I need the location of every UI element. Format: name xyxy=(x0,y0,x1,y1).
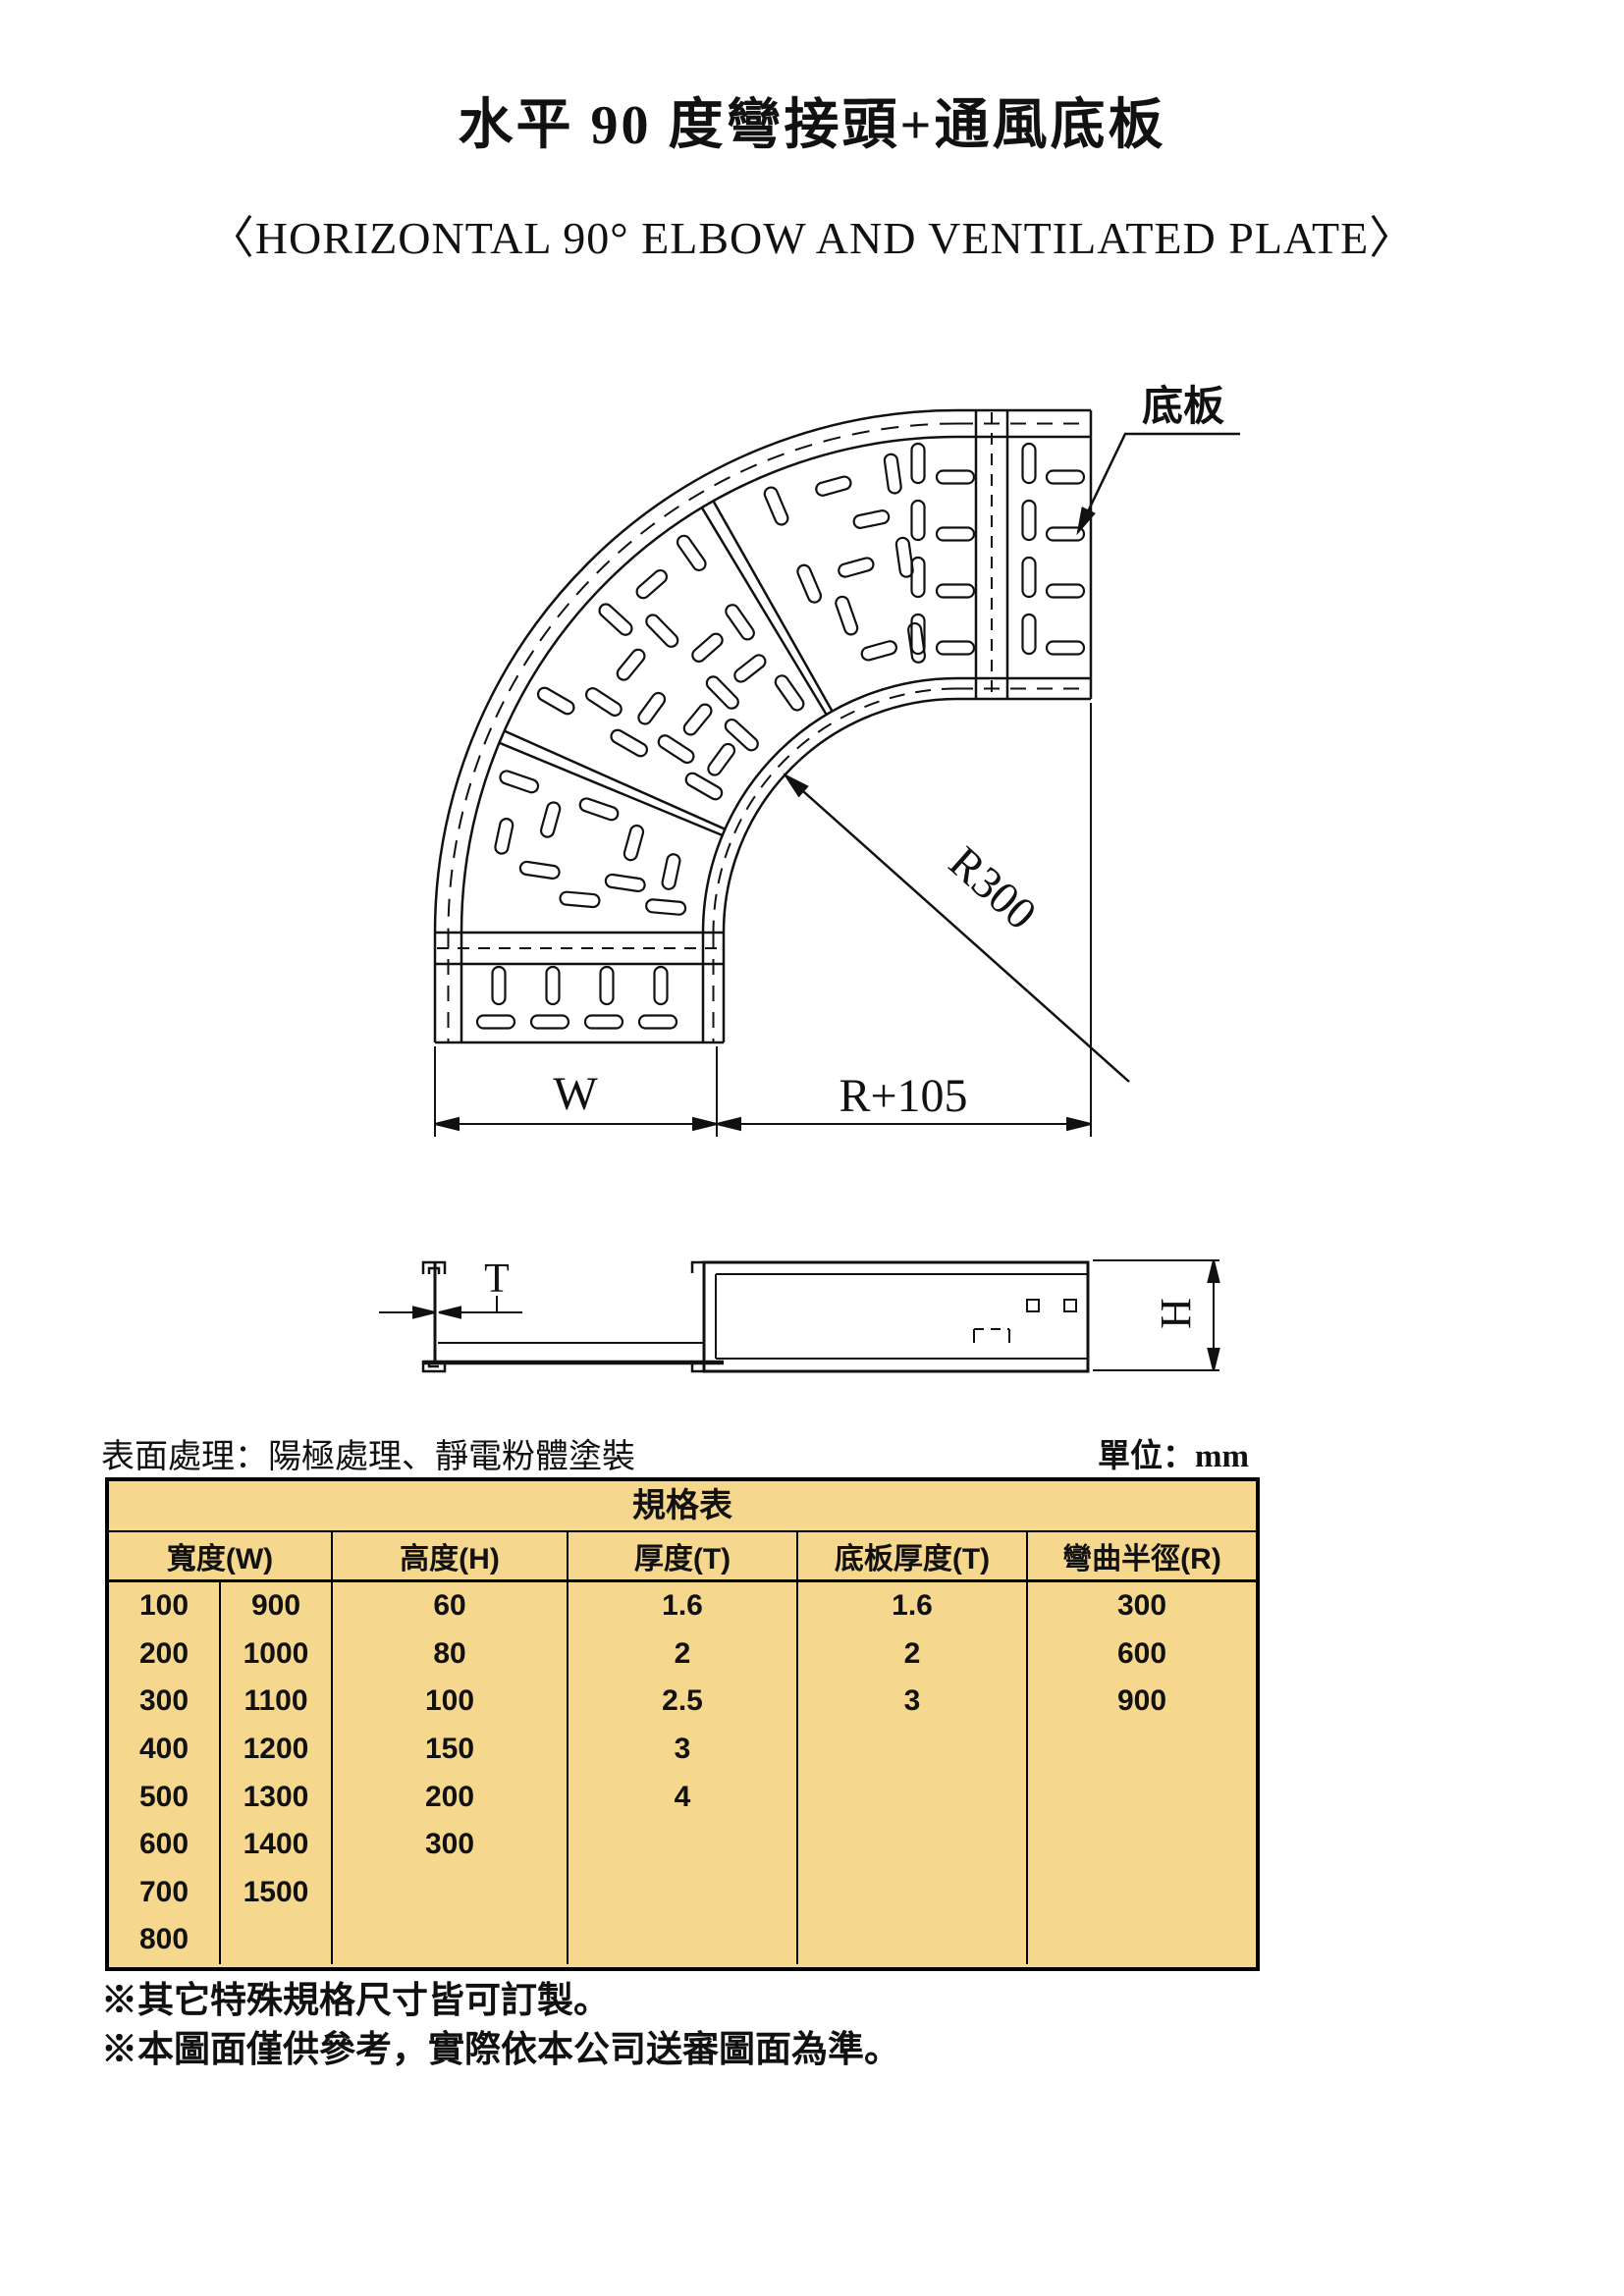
table-cell: 2 xyxy=(568,1630,796,1679)
footnote: ※其它特殊規格尺寸皆可訂製。 xyxy=(101,1977,900,2026)
table-cell: 1400 xyxy=(221,1821,331,1869)
table-cell: 200 xyxy=(333,1773,567,1821)
spec-table-caption: 規格表 xyxy=(109,1481,1256,1532)
table-cell xyxy=(221,1916,331,1964)
r-plus-dim-label: R+105 xyxy=(839,1070,967,1122)
table-cell: 400 xyxy=(109,1726,219,1774)
t-dim-label: T xyxy=(484,1256,510,1302)
table-cell: 1300 xyxy=(221,1773,331,1821)
footnote: ※本圖面僅供參考，實際依本公司送審圖面為準。 xyxy=(101,2026,900,2075)
col-header-height: 高度(H) xyxy=(331,1532,567,1579)
surface-treatment-note: 表面處理：陽極處理、靜電粉體塗裝 xyxy=(101,1429,635,1477)
footnotes: ※其它特殊規格尺寸皆可訂製。 ※本圖面僅供參考，實際依本公司送審圖面為準。 xyxy=(101,1977,900,2075)
elbow-plan-view xyxy=(435,410,1091,1042)
dimensions-plan xyxy=(435,434,1240,1137)
table-cell: 100 xyxy=(333,1678,567,1726)
table-cell: 60 xyxy=(333,1582,567,1630)
plate-label: 底板 xyxy=(1142,384,1224,430)
table-cell xyxy=(798,1773,1026,1821)
table-cell: 1.6 xyxy=(798,1582,1026,1630)
table-cell: 800 xyxy=(109,1916,219,1964)
table-cell: 200 xyxy=(109,1630,219,1679)
table-cell: 100 xyxy=(109,1582,219,1630)
table-column-r: 300600900 xyxy=(1026,1582,1256,1964)
table-cell xyxy=(798,1869,1026,1917)
table-cell xyxy=(798,1726,1026,1774)
col-header-plate-thickness: 底板厚度(T) xyxy=(796,1532,1026,1579)
table-column-w1: 100200300400500600700800 xyxy=(109,1582,219,1964)
table-cell xyxy=(1028,1869,1256,1917)
datasheet-page: { "title": "水平 90 度彎接頭+通風底板", "subtitle"… xyxy=(0,0,1624,2296)
col-header-width: 寬度(W) xyxy=(109,1532,331,1579)
table-cell xyxy=(1028,1821,1256,1869)
width-dim-label: W xyxy=(553,1068,598,1120)
table-cell: 300 xyxy=(333,1821,567,1869)
spec-table-header: 寬度(W) 高度(H) 厚度(T) 底板厚度(T) 彎曲半徑(R) xyxy=(109,1532,1256,1582)
table-cell: 300 xyxy=(1028,1582,1256,1630)
spec-table: 規格表 寬度(W) 高度(H) 厚度(T) 底板厚度(T) 彎曲半徑(R) 10… xyxy=(105,1477,1260,1971)
table-column-w2: 900100011001200130014001500 xyxy=(219,1582,331,1964)
table-column-pt: 1.623 xyxy=(796,1582,1026,1964)
unit-note: 單位：mm xyxy=(982,1429,1249,1476)
table-cell: 700 xyxy=(109,1869,219,1917)
table-cell xyxy=(1028,1773,1256,1821)
table-cell xyxy=(568,1869,796,1917)
table-cell xyxy=(333,1916,567,1964)
table-cell: 2.5 xyxy=(568,1678,796,1726)
table-cell xyxy=(798,1821,1026,1869)
table-cell: 2 xyxy=(798,1630,1026,1679)
spec-table-body: 1002003004005006007008009001000110012001… xyxy=(109,1582,1256,1964)
table-cell: 600 xyxy=(109,1821,219,1869)
h-dim-label: H xyxy=(1152,1298,1200,1329)
table-cell: 3 xyxy=(798,1678,1026,1726)
table-cell: 80 xyxy=(333,1630,567,1679)
table-cell xyxy=(798,1916,1026,1964)
table-cell xyxy=(568,1916,796,1964)
table-cell: 600 xyxy=(1028,1630,1256,1679)
table-column-t: 1.622.534 xyxy=(567,1582,796,1964)
table-cell: 900 xyxy=(1028,1678,1256,1726)
table-cell xyxy=(1028,1726,1256,1774)
table-cell xyxy=(568,1821,796,1869)
cross-section-view xyxy=(423,1262,1088,1371)
table-cell: 1.6 xyxy=(568,1582,796,1630)
table-cell: 1000 xyxy=(221,1630,331,1679)
table-cell: 500 xyxy=(109,1773,219,1821)
col-header-thickness: 厚度(T) xyxy=(567,1532,796,1579)
table-cell: 1500 xyxy=(221,1869,331,1917)
table-column-h: 6080100150200300 xyxy=(331,1582,567,1964)
table-cell: 300 xyxy=(109,1678,219,1726)
table-cell xyxy=(1028,1916,1256,1964)
table-cell: 3 xyxy=(568,1726,796,1774)
table-cell xyxy=(333,1869,567,1917)
table-cell: 900 xyxy=(221,1582,331,1630)
ventilation-slots xyxy=(477,444,1084,1029)
radius-callout: R300 xyxy=(940,836,1046,938)
table-cell: 150 xyxy=(333,1726,567,1774)
table-cell: 4 xyxy=(568,1773,796,1821)
table-cell: 1200 xyxy=(221,1726,331,1774)
table-cell: 1100 xyxy=(221,1678,331,1726)
col-header-bend-radius: 彎曲半徑(R) xyxy=(1026,1532,1256,1579)
